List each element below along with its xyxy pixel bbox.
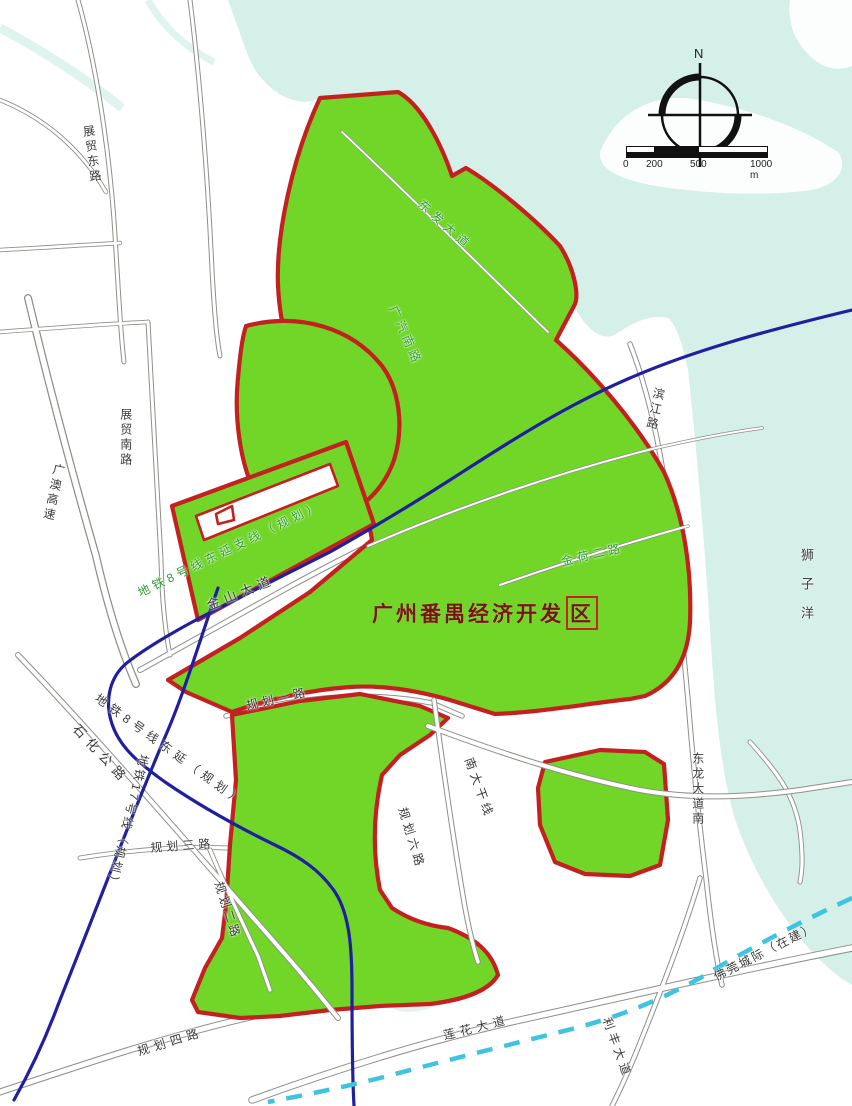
creek	[148, 0, 214, 62]
scale-tick-500: 500	[690, 159, 707, 170]
compass-north-label: N	[694, 46, 703, 61]
zone-title-text: 广州番禺经济开发	[372, 598, 564, 628]
label-shiziyang-water: 狮子洋	[798, 548, 813, 635]
zone-south	[192, 694, 498, 1018]
scale-bar: 0 200 500 1000 m	[626, 146, 766, 172]
creek	[0, 28, 122, 108]
scale-bar-graphic	[626, 146, 768, 158]
zone-title-boxed-char: 区	[566, 596, 598, 630]
scale-tick-1000: 1000 m	[750, 159, 772, 181]
map: N 0 200 500 1000 m 广州番禺经济开发区 展贸东路 展贸南路 广…	[0, 0, 852, 1106]
scale-tick-0: 0	[623, 159, 629, 170]
scale-tick-200: 200	[646, 159, 663, 170]
zone-title: 广州番禺经济开发区	[372, 596, 598, 630]
label-donglong-avenue-south: 东龙大道南	[690, 752, 704, 827]
label-zhanmao-south-road: 展贸南路	[118, 408, 132, 468]
